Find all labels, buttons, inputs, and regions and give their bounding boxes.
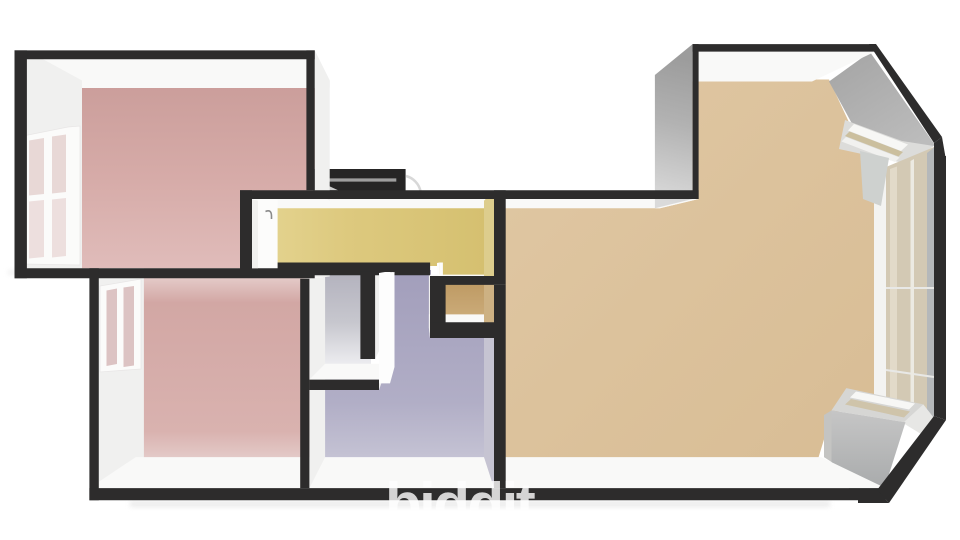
svg-text:biddit: biddit	[385, 471, 536, 538]
